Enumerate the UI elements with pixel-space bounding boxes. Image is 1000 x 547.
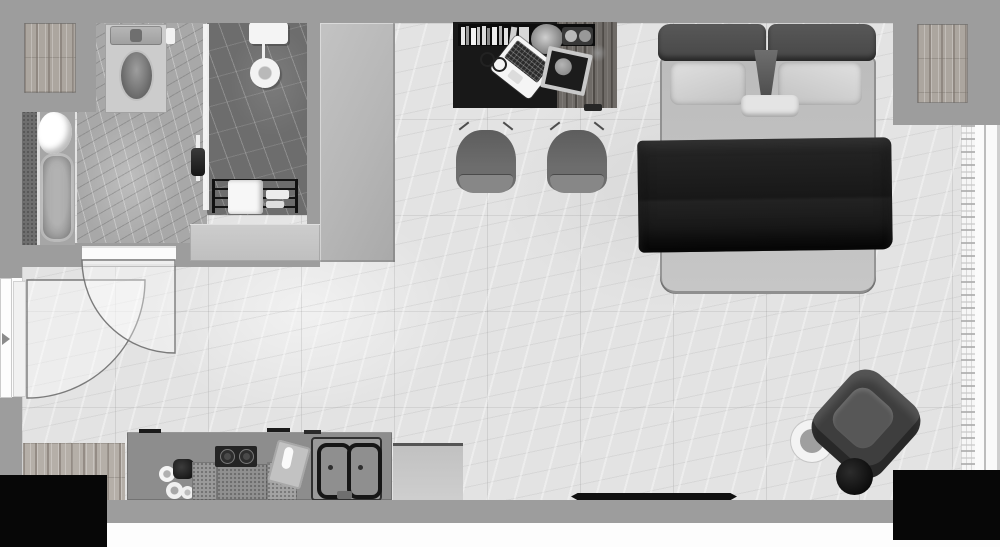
towel <box>228 180 263 214</box>
sheer-curtain <box>961 125 975 470</box>
headboard-cushion-left <box>658 24 766 61</box>
book-spine <box>487 28 490 45</box>
towel-rack-item <box>266 201 284 208</box>
book-spine <box>504 28 508 45</box>
void-corner-right <box>893 470 1000 540</box>
plate <box>579 30 591 42</box>
headboard-cushion-right <box>768 24 876 61</box>
faucet <box>337 491 352 499</box>
burner <box>220 449 235 464</box>
book-spine <box>461 27 465 45</box>
toilet-controls <box>166 28 175 44</box>
ottoman <box>836 458 873 495</box>
wardrobe <box>320 23 395 262</box>
door-swing-arcs <box>0 240 200 410</box>
cabinet-fridge <box>393 443 463 503</box>
desk-deco-leaf <box>589 44 607 62</box>
floor-plan <box>0 0 1000 547</box>
counter-tray <box>192 462 217 500</box>
book-spine <box>482 26 486 45</box>
toilet-flush-button <box>130 29 142 42</box>
chair-front-lip <box>550 174 604 193</box>
shower-glass-panel <box>203 24 209 210</box>
burner <box>239 449 254 464</box>
book-spine <box>477 27 480 45</box>
coffee-maker <box>173 459 194 479</box>
counter-handle <box>267 428 290 432</box>
counter-handle <box>304 430 321 434</box>
toilet-bowl <box>121 52 152 99</box>
bed-blanket <box>637 137 893 253</box>
sink-drain <box>328 465 333 470</box>
bottom-wall <box>107 500 893 523</box>
bathtub-ledge <box>22 110 37 245</box>
void-corner-left <box>0 475 107 547</box>
pillow-left <box>670 62 746 105</box>
wood-panel-inset-right <box>917 24 968 103</box>
top-wall <box>0 0 1000 23</box>
plate <box>565 30 577 42</box>
book-spine <box>466 26 469 45</box>
counter-handle <box>139 429 161 433</box>
book-spine <box>471 28 476 45</box>
frame-disc <box>553 57 573 77</box>
shower-side-wall <box>307 23 320 245</box>
counter-tray <box>217 464 267 500</box>
towel-rack-item <box>266 190 289 199</box>
chair-front-lip <box>459 174 513 193</box>
desk-chair-left <box>456 130 516 192</box>
bathtub <box>40 153 74 242</box>
vanity-counter <box>190 224 320 261</box>
drawer-handle <box>584 104 602 111</box>
book-spine <box>492 27 497 45</box>
wood-panel-inset-left <box>24 23 76 93</box>
photo-frame <box>540 46 593 96</box>
desk-chair-right <box>547 130 607 192</box>
accent-pillow <box>741 95 799 117</box>
book-spine <box>499 26 502 45</box>
shower-head <box>250 58 280 88</box>
glasses-lens <box>492 57 507 72</box>
window-sill-strip <box>975 125 984 470</box>
window-sill-strip <box>986 125 997 470</box>
hand-shower <box>191 148 205 176</box>
sink-basin <box>347 443 382 499</box>
sink-drain <box>358 465 363 470</box>
shower-controls <box>249 22 288 44</box>
